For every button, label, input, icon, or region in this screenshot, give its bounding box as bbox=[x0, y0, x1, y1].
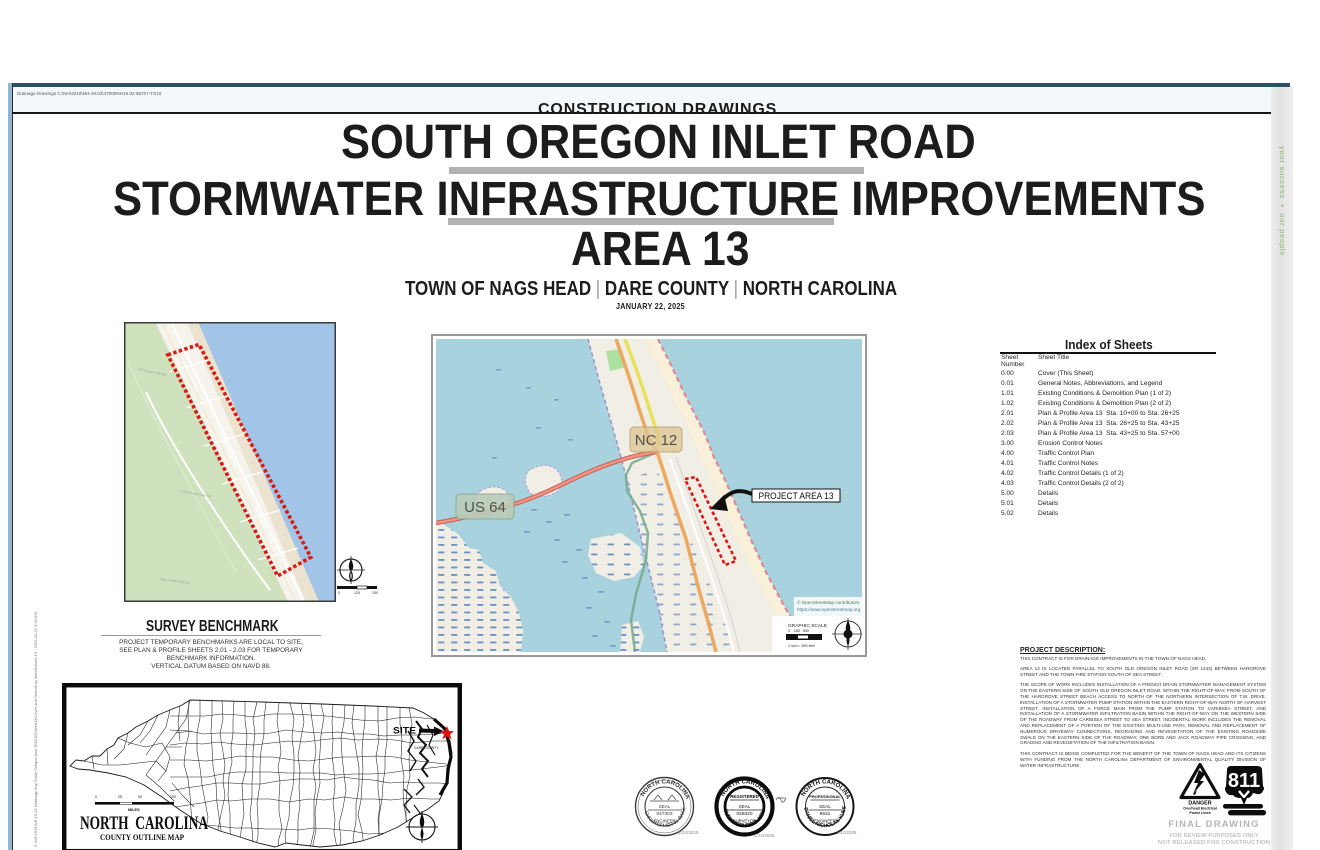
svg-text:250: 250 bbox=[372, 591, 378, 595]
svg-text:Overhead Electrical: Overhead Electrical bbox=[1183, 807, 1217, 811]
svg-text:SEAL: SEAL bbox=[819, 804, 831, 809]
svg-text:1/22/2025: 1/22/2025 bbox=[836, 830, 857, 835]
svg-text:1 inch = 500 feet: 1 inch = 500 feet bbox=[788, 644, 815, 648]
svg-text:028420: 028420 bbox=[736, 811, 752, 817]
svg-text:047303: 047303 bbox=[656, 811, 672, 817]
svg-text:SEAL: SEAL bbox=[739, 804, 751, 809]
svg-text:https://www.openstreetmap.org: https://www.openstreetmap.org bbox=[797, 607, 861, 612]
svg-text:SEAL: SEAL bbox=[659, 804, 671, 809]
svg-text:NORTH CAROLINA: NORTH CAROLINA bbox=[80, 813, 208, 834]
svg-text:100: 100 bbox=[170, 795, 176, 799]
svg-text:MILES: MILES bbox=[128, 808, 140, 812]
svg-text:ENGINEER: ENGINEER bbox=[814, 819, 836, 824]
svg-text:PROFESSIONAL: PROFESSIONAL bbox=[809, 794, 841, 799]
svg-text:125: 125 bbox=[354, 591, 360, 595]
svg-text:SURVEYOR: SURVEYOR bbox=[733, 819, 756, 824]
svg-text:DARE COUNTY: DARE COUNTY bbox=[414, 746, 439, 750]
svg-text:US 64: US 64 bbox=[464, 499, 506, 516]
svg-text:0: 0 bbox=[338, 591, 340, 595]
svg-text:PROJECT AREA 13: PROJECT AREA 13 bbox=[759, 491, 834, 502]
svg-text:1/22/2025: 1/22/2025 bbox=[678, 830, 699, 835]
svg-text:REGISTERED: REGISTERED bbox=[730, 794, 759, 799]
svg-text:NC 12: NC 12 bbox=[635, 432, 678, 449]
svg-text:© OpenStreetMap contributors: © OpenStreetMap contributors bbox=[797, 599, 860, 605]
svg-text:1/22/2025: 1/22/2025 bbox=[754, 833, 775, 838]
svg-text:Power Lines: Power Lines bbox=[1189, 811, 1210, 815]
svg-text:0 250 500: 0 250 500 bbox=[788, 629, 809, 633]
svg-text:SITE: SITE bbox=[393, 726, 416, 737]
svg-text:ENGINEER: ENGINEER bbox=[654, 819, 676, 824]
svg-text:25: 25 bbox=[118, 795, 122, 799]
svg-text:COUNTY OUTLINE MAP: COUNTY OUTLINE MAP bbox=[100, 833, 184, 842]
svg-text:9531: 9531 bbox=[820, 811, 831, 817]
svg-text:50: 50 bbox=[138, 795, 142, 799]
svg-text:0: 0 bbox=[95, 795, 97, 799]
svg-text:811: 811 bbox=[1228, 770, 1260, 792]
